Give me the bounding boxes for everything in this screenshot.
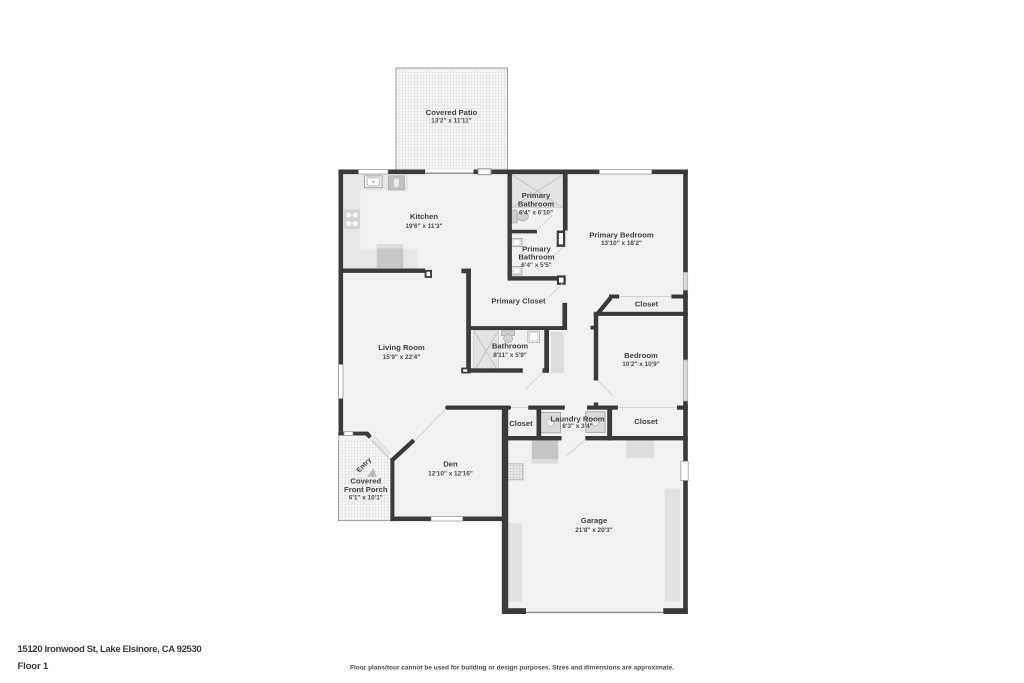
svg-text:15'9" x 22'4": 15'9" x 22'4" (383, 354, 421, 361)
svg-text:Closet: Closet (635, 300, 659, 309)
svg-text:Closet: Closet (509, 419, 533, 428)
svg-text:Floor plans/tour cannot be use: Floor plans/tour cannot be used for buil… (350, 665, 674, 672)
svg-text:Bedroom: Bedroom (624, 351, 658, 360)
svg-text:13'2" x 11'11": 13'2" x 11'11" (431, 118, 471, 125)
svg-text:Closet: Closet (634, 417, 658, 426)
svg-text:Bathroom: Bathroom (518, 199, 554, 208)
svg-text:Covered Patio: Covered Patio (426, 108, 478, 117)
svg-text:12'10" x 12'16": 12'10" x 12'16" (428, 471, 473, 478)
svg-text:21'8" x 20'3": 21'8" x 20'3" (575, 527, 613, 534)
svg-text:Garage: Garage (581, 516, 608, 525)
svg-text:13'10" x 18'2": 13'10" x 18'2" (601, 240, 642, 247)
svg-text:Laundry Room: Laundry Room (550, 415, 604, 424)
svg-text:6'1" x 10'1": 6'1" x 10'1" (349, 495, 383, 502)
svg-text:8'11" x 5'9": 8'11" x 5'9" (493, 352, 527, 359)
svg-text:6'4" x 6'10": 6'4" x 6'10" (519, 209, 553, 216)
svg-text:Kitchen: Kitchen (410, 212, 438, 221)
svg-text:Primary Bedroom: Primary Bedroom (589, 231, 654, 240)
svg-text:8'3" x 3'4": 8'3" x 3'4" (562, 423, 592, 430)
svg-text:Bathroom: Bathroom (492, 342, 528, 351)
svg-text:Front Porch: Front Porch (344, 485, 388, 494)
svg-text:15120 Ironwood St, Lake Elsino: 15120 Ironwood St, Lake Elsinore, CA 925… (18, 644, 202, 655)
svg-text:Living Room: Living Room (378, 343, 425, 352)
svg-text:Floor 1: Floor 1 (18, 661, 49, 672)
svg-text:6'4" x 5'5": 6'4" x 5'5" (521, 262, 551, 269)
svg-text:10'2" x 10'9": 10'2" x 10'9" (622, 361, 660, 368)
svg-text:Bathroom: Bathroom (518, 252, 554, 261)
svg-text:Primary Closet: Primary Closet (491, 297, 546, 306)
svg-text:Den: Den (443, 460, 458, 469)
svg-text:19'6" x 11'3": 19'6" x 11'3" (405, 223, 442, 230)
